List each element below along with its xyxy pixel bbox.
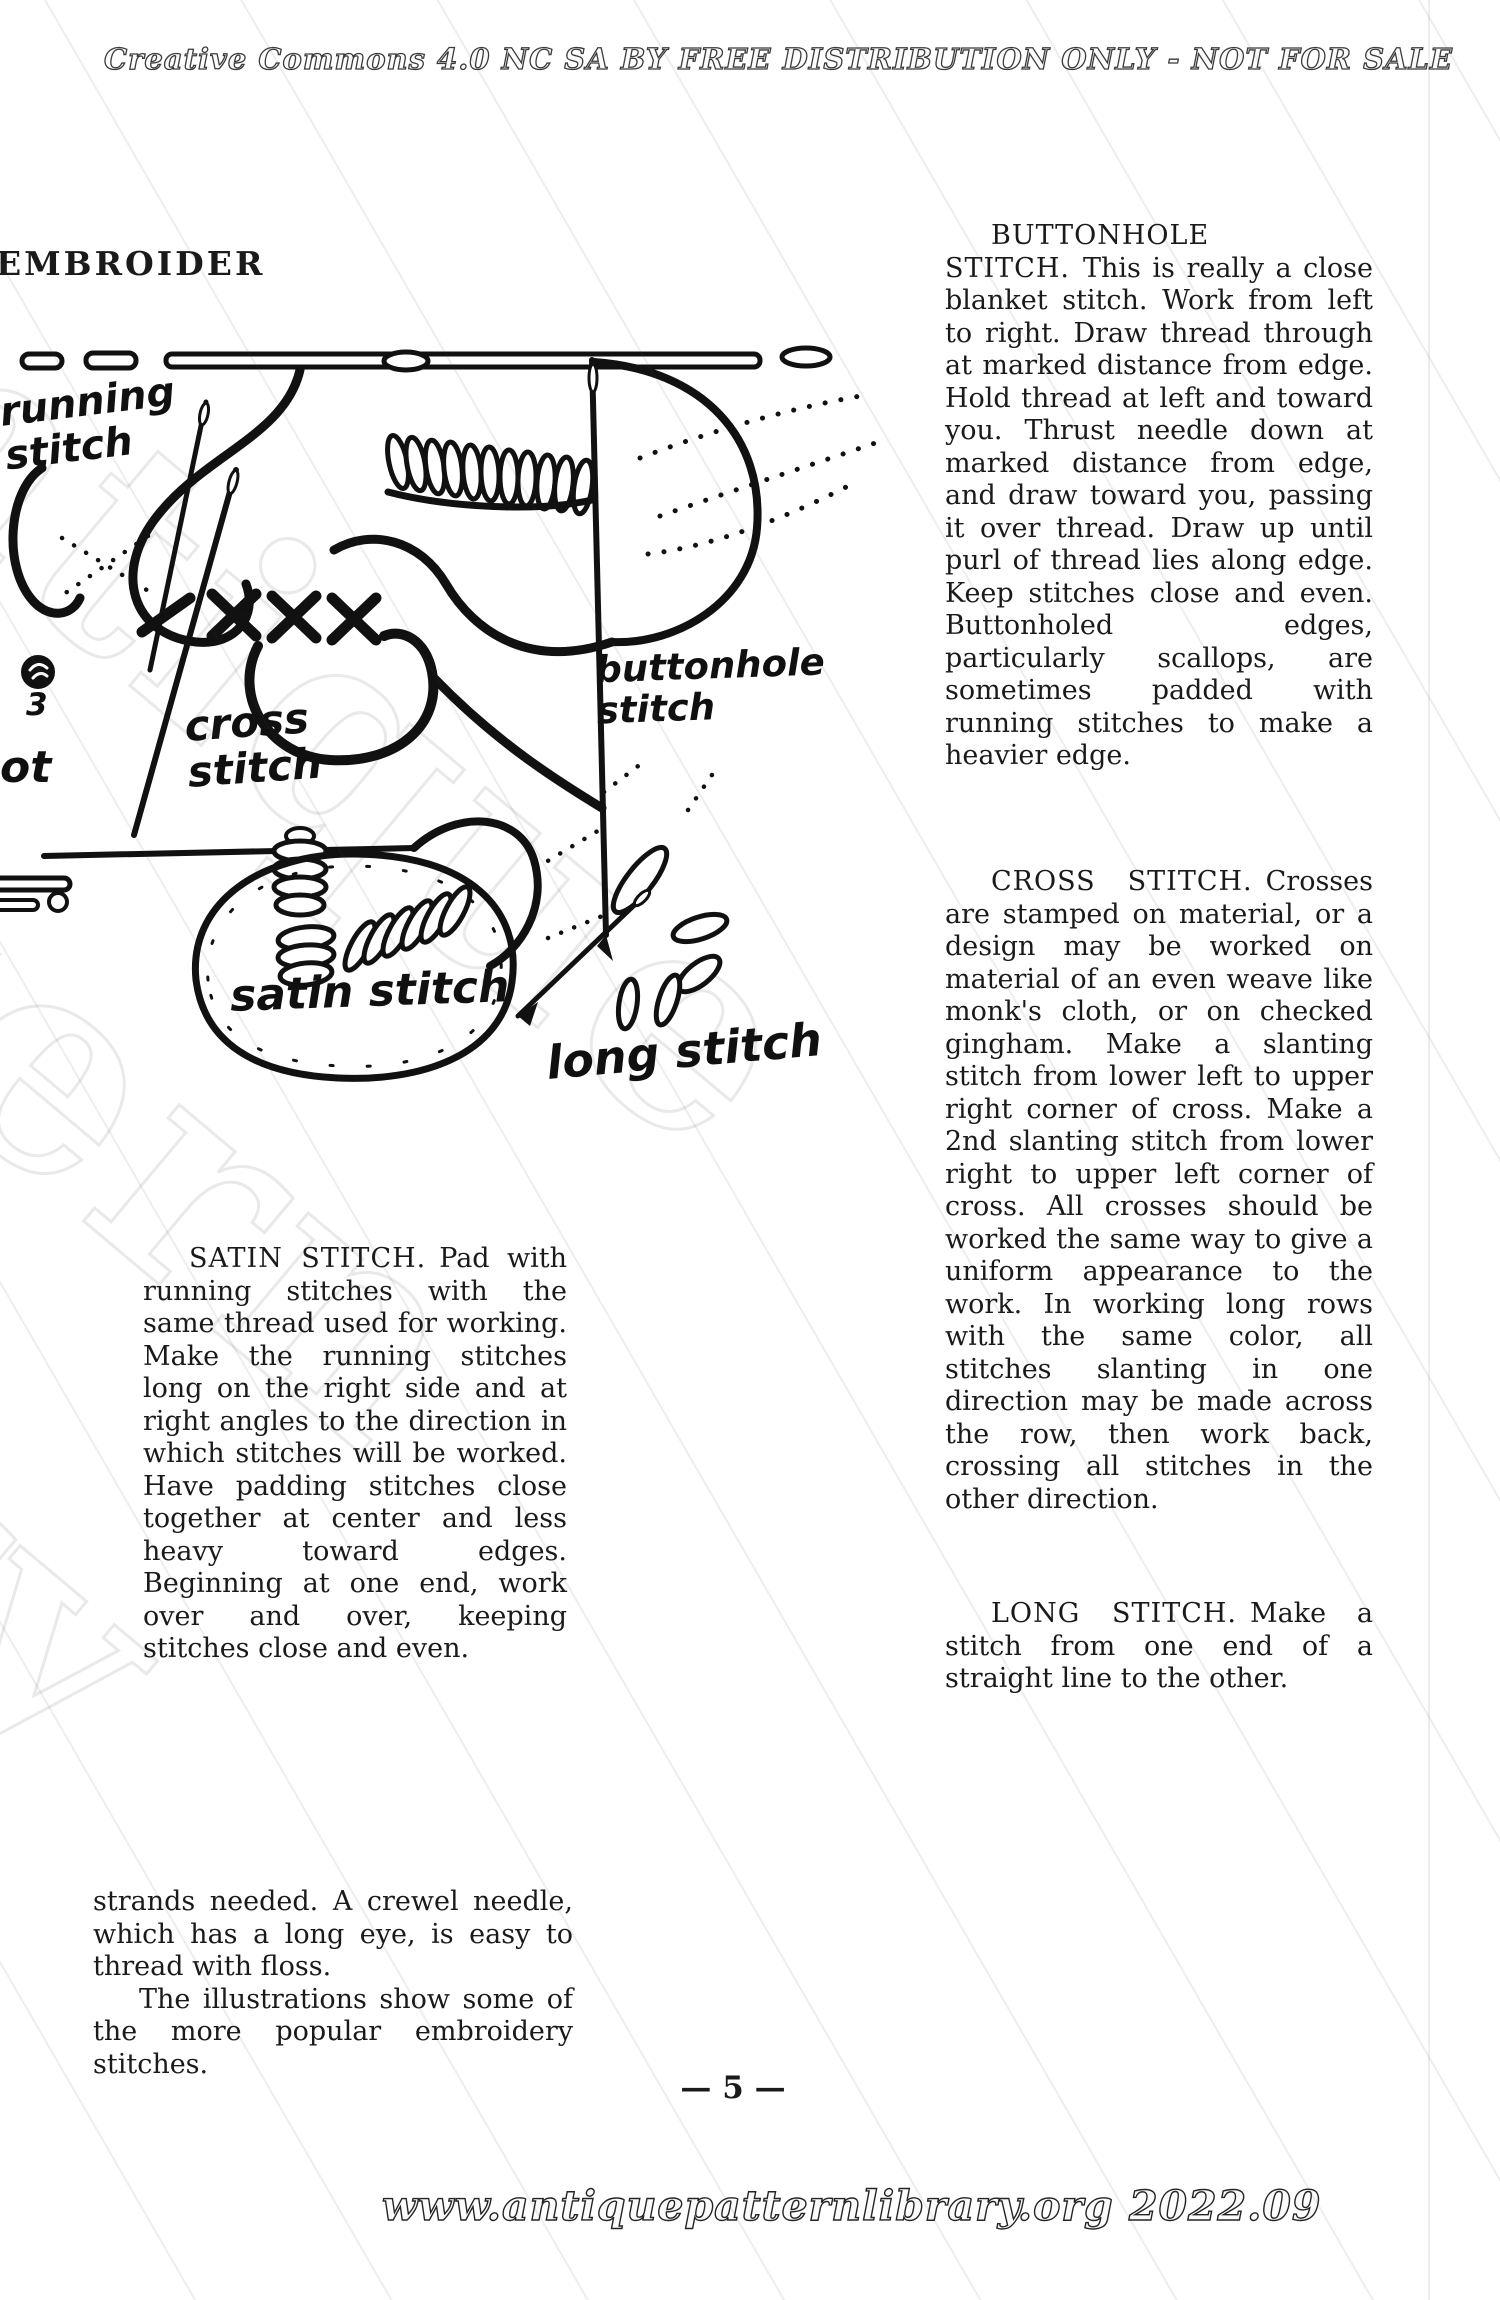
label-satin-stitch: satin stitch (229, 963, 510, 1021)
license-header: Creative Commons 4.0 NC SA BY FREE DISTR… (104, 42, 1453, 76)
closing-paragraph-2: The illustrations show some of the more … (93, 1984, 573, 2082)
cross-title: CROSS STITCH. (991, 866, 1253, 897)
section-heading-embroider: EMBROIDER (0, 244, 265, 283)
scanned-document-page: Antique Pattern Library Creative Commons… (0, 0, 1500, 2300)
footer-url: www.antiquepatternlibrary.org 2022.09 (382, 2182, 1321, 2230)
buttonhole-paragraph: BUTTONHOLE STITCH.This is really a close… (945, 220, 1373, 773)
satin-body: Pad with running stitches with the same … (143, 1243, 567, 1664)
buttonhole-body: This is really a close blanket stitch. W… (945, 253, 1373, 772)
satin-title: SATIN STITCH. (189, 1243, 426, 1274)
closing-paragraphs: strands needed. A crewel needle, which h… (93, 1886, 573, 2081)
cross-paragraph: CROSS STITCH.Crosses are stamped on mate… (945, 866, 1373, 1516)
closing-paragraph-1: strands needed. A crewel needle, which h… (93, 1886, 573, 1984)
label-knot-number: 3 (26, 688, 48, 722)
page-number: — 5 — (658, 2070, 808, 2106)
label-knot-partial: ot (0, 744, 51, 792)
long-paragraph: LONG STITCH.Make a stitch from one end o… (945, 1598, 1373, 1696)
page-edge-line (1428, 0, 1430, 2300)
label-buttonhole-stitch: buttonhole stitch (595, 642, 848, 732)
cross-body: Crosses are stamped on material, or a de… (945, 866, 1373, 1515)
label-cross-stitch: cross stitch (183, 692, 359, 796)
long-title: LONG STITCH. (991, 1598, 1237, 1629)
satin-paragraph: SATIN STITCH.Pad with running stitches w… (143, 1243, 567, 1666)
